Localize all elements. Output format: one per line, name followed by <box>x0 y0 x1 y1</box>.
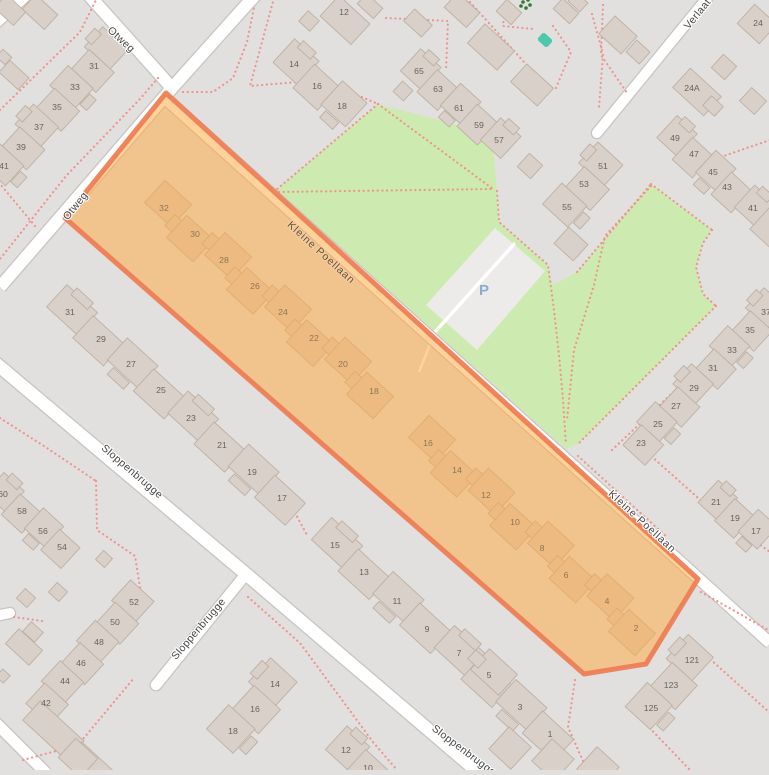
svg-text:14: 14 <box>289 59 299 69</box>
svg-text:10: 10 <box>363 763 373 770</box>
svg-text:14: 14 <box>452 465 462 475</box>
svg-text:1: 1 <box>548 729 553 739</box>
svg-text:5: 5 <box>487 670 492 680</box>
svg-text:31: 31 <box>708 363 718 373</box>
svg-text:18: 18 <box>228 726 238 736</box>
svg-text:26: 26 <box>250 281 260 291</box>
svg-text:3: 3 <box>518 702 523 712</box>
svg-text:13: 13 <box>359 567 369 577</box>
svg-text:21: 21 <box>711 497 721 507</box>
svg-text:57: 57 <box>494 135 504 145</box>
svg-text:45: 45 <box>708 167 718 177</box>
svg-text:42: 42 <box>41 698 51 708</box>
svg-text:14: 14 <box>270 679 280 689</box>
svg-text:53: 53 <box>579 179 589 189</box>
svg-text:6: 6 <box>564 570 569 580</box>
svg-text:51: 51 <box>598 161 608 171</box>
svg-text:31: 31 <box>65 307 75 317</box>
svg-text:125: 125 <box>644 703 659 713</box>
svg-text:24A: 24A <box>684 83 700 93</box>
svg-text:48: 48 <box>94 637 104 647</box>
svg-text:21: 21 <box>217 440 227 450</box>
svg-text:8: 8 <box>540 543 545 553</box>
svg-text:12: 12 <box>339 7 349 17</box>
svg-text:33: 33 <box>727 345 737 355</box>
svg-text:17: 17 <box>751 526 761 536</box>
svg-text:41: 41 <box>0 161 9 171</box>
svg-text:19: 19 <box>730 513 740 523</box>
svg-text:25: 25 <box>653 419 663 429</box>
svg-text:39: 39 <box>16 142 26 152</box>
svg-text:31: 31 <box>89 61 99 71</box>
svg-text:37: 37 <box>34 122 44 132</box>
svg-text:19: 19 <box>247 467 257 477</box>
svg-text:27: 27 <box>126 359 136 369</box>
svg-text:59: 59 <box>474 120 484 130</box>
svg-text:11: 11 <box>392 596 401 606</box>
svg-text:35: 35 <box>745 325 755 335</box>
svg-text:37: 37 <box>761 307 769 317</box>
svg-text:61: 61 <box>454 103 464 113</box>
svg-text:32: 32 <box>159 203 169 213</box>
svg-text:24: 24 <box>278 307 288 317</box>
svg-text:49: 49 <box>670 133 680 143</box>
svg-text:43: 43 <box>722 182 732 192</box>
svg-text:123: 123 <box>664 680 679 690</box>
svg-text:23: 23 <box>636 438 646 448</box>
svg-text:16: 16 <box>312 81 322 91</box>
svg-text:22: 22 <box>309 333 319 343</box>
svg-text:2: 2 <box>634 623 639 633</box>
svg-text:55: 55 <box>562 202 572 212</box>
svg-text:56: 56 <box>38 526 48 536</box>
svg-text:52: 52 <box>129 597 139 607</box>
svg-text:29: 29 <box>689 383 699 393</box>
svg-text:27: 27 <box>671 401 681 411</box>
svg-text:30: 30 <box>190 229 200 239</box>
svg-text:41: 41 <box>748 203 758 213</box>
svg-text:121: 121 <box>685 655 700 665</box>
svg-text:18: 18 <box>337 101 347 111</box>
svg-text:35: 35 <box>52 102 62 112</box>
svg-text:47: 47 <box>689 149 699 159</box>
svg-text:29: 29 <box>96 334 106 344</box>
svg-text:23: 23 <box>186 413 196 423</box>
svg-text:16: 16 <box>250 704 260 714</box>
svg-text:4: 4 <box>605 596 610 606</box>
svg-text:17: 17 <box>277 493 287 503</box>
svg-text:54: 54 <box>57 542 67 552</box>
svg-text:50: 50 <box>110 617 120 627</box>
svg-text:28: 28 <box>219 255 229 265</box>
svg-text:46: 46 <box>76 658 86 668</box>
svg-text:33: 33 <box>70 82 80 92</box>
svg-text:60: 60 <box>0 489 8 499</box>
svg-text:24: 24 <box>753 18 763 28</box>
svg-text:20: 20 <box>338 359 348 369</box>
svg-text:12: 12 <box>341 745 351 755</box>
svg-text:P: P <box>479 282 489 299</box>
svg-text:44: 44 <box>60 676 70 686</box>
svg-text:65: 65 <box>414 66 424 76</box>
svg-text:25: 25 <box>156 385 166 395</box>
svg-text:10: 10 <box>510 517 520 527</box>
svg-text:9: 9 <box>425 624 430 634</box>
svg-text:18: 18 <box>369 386 379 396</box>
svg-text:16: 16 <box>423 438 433 448</box>
svg-text:15: 15 <box>330 540 340 550</box>
svg-text:12: 12 <box>481 490 491 500</box>
svg-text:58: 58 <box>17 506 27 516</box>
svg-text:7: 7 <box>457 648 462 658</box>
svg-text:63: 63 <box>433 84 443 94</box>
